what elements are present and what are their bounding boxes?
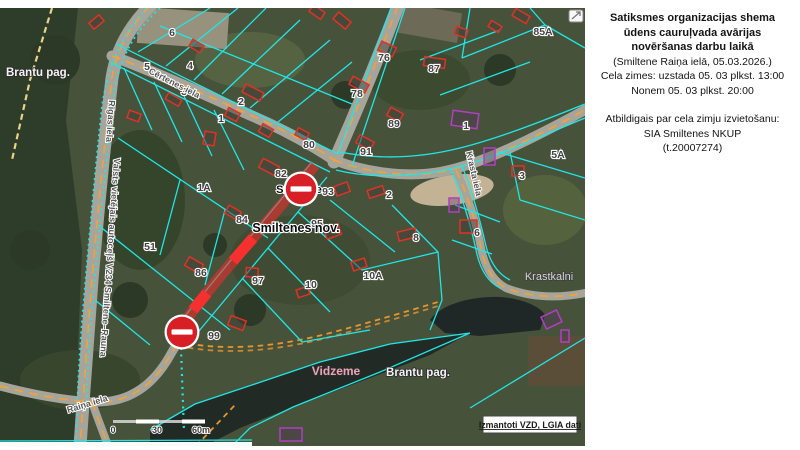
place-label: Vidzeme [312,364,361,378]
parcel-label: 2 [386,189,392,201]
attribution-box: Izmantoti VZD, LGIA dati [479,416,581,433]
parcel-label: 99 [208,330,220,342]
panel-text-line: novēršanas darbu laikā [585,40,800,55]
parcel-label: 78 [351,88,363,100]
place-label: Smiltenes nov. [252,221,339,235]
panel-text-line: Nonem 05. 03 plkst. 20:00 [585,84,800,99]
parcel-label: 93 [322,186,334,198]
panel-text-line: Cela zimes: uzstada 05. 03 plkst. 13:00 [585,69,800,84]
parcel-label: 76 [378,52,390,64]
panel-text-line: (Smiltene Raiņa ielā, 05.03.2026.) [585,55,800,70]
no-entry-sign [284,172,319,207]
building-outline [561,330,569,342]
scale-label-60m: 60m [192,425,210,435]
parcel-label: 1A [197,182,211,194]
panel-text-line: ūdens cauruļvada avārijas [585,26,800,41]
map-edge-strip [0,442,252,446]
parcel-label: 4 [187,60,193,72]
place-label: Krastkalni [525,271,573,283]
building-outline [484,148,495,165]
parcel-label: 86 [195,267,207,279]
parcel-label: 10A [363,270,383,282]
place-label: Brantu pag. [386,367,450,379]
parcel-label: 8 [413,232,419,244]
building-outline [203,131,216,146]
parcel-label: 91 [360,146,372,158]
place-label: Brantu pag. [6,67,70,79]
building-outline [280,428,302,441]
panel-text-line: Satiksmes organizacijas shema [585,11,800,26]
parcel-label: 80 [303,139,315,151]
parcel-label: 2 [238,96,244,108]
parcel-label: 5A [551,149,565,161]
parcel-label: 1 [463,120,469,132]
no-entry-sign [165,315,200,350]
parcel-label: 3 [519,170,525,182]
panel-responsible: Atbildigais par cela zimju izvietošanu:S… [585,112,800,156]
map[interactable]: 654321768785A788980911829321A5A384955168… [0,8,585,446]
parcel-label: 87 [428,63,440,75]
parcel-label: 89 [388,118,400,130]
parcel-label: 85A [533,26,553,38]
parcel-label: 51 [144,241,156,253]
attribution-text: Izmantoti VZD, LGIA dati [479,420,581,430]
panel-text-line: (t.20007274) [585,141,800,156]
panel-text-line: SIA Smiltenes NKUP [585,127,800,142]
parcel-label: 6 [474,227,480,239]
traffic-scheme-page: 654321768785A788980911829321A5A384955168… [0,0,800,450]
parcel-label: 97 [252,275,264,287]
building-outline [449,198,459,212]
parcel-label: 10 [305,279,317,291]
parcel-label: 6 [169,27,175,39]
parcel-label: 1 [218,113,224,125]
scale-label-30: 30 [152,425,162,435]
scale-label-0: 0 [110,425,115,435]
panel-title: Satiksmes organizacijas shemaūdens cauru… [585,11,800,55]
edit-icon[interactable] [569,10,583,22]
parcel-label: 82 [275,168,287,180]
parcel-label: 84 [236,214,248,226]
panel-schedule: (Smiltene Raiņa ielā, 05.03.2026.)Cela z… [585,55,800,99]
panel-text-line: Atbildigais par cela zimju izvietošanu: [585,112,800,127]
info-panel: Satiksmes organizacijas shemaūdens cauru… [585,0,800,450]
